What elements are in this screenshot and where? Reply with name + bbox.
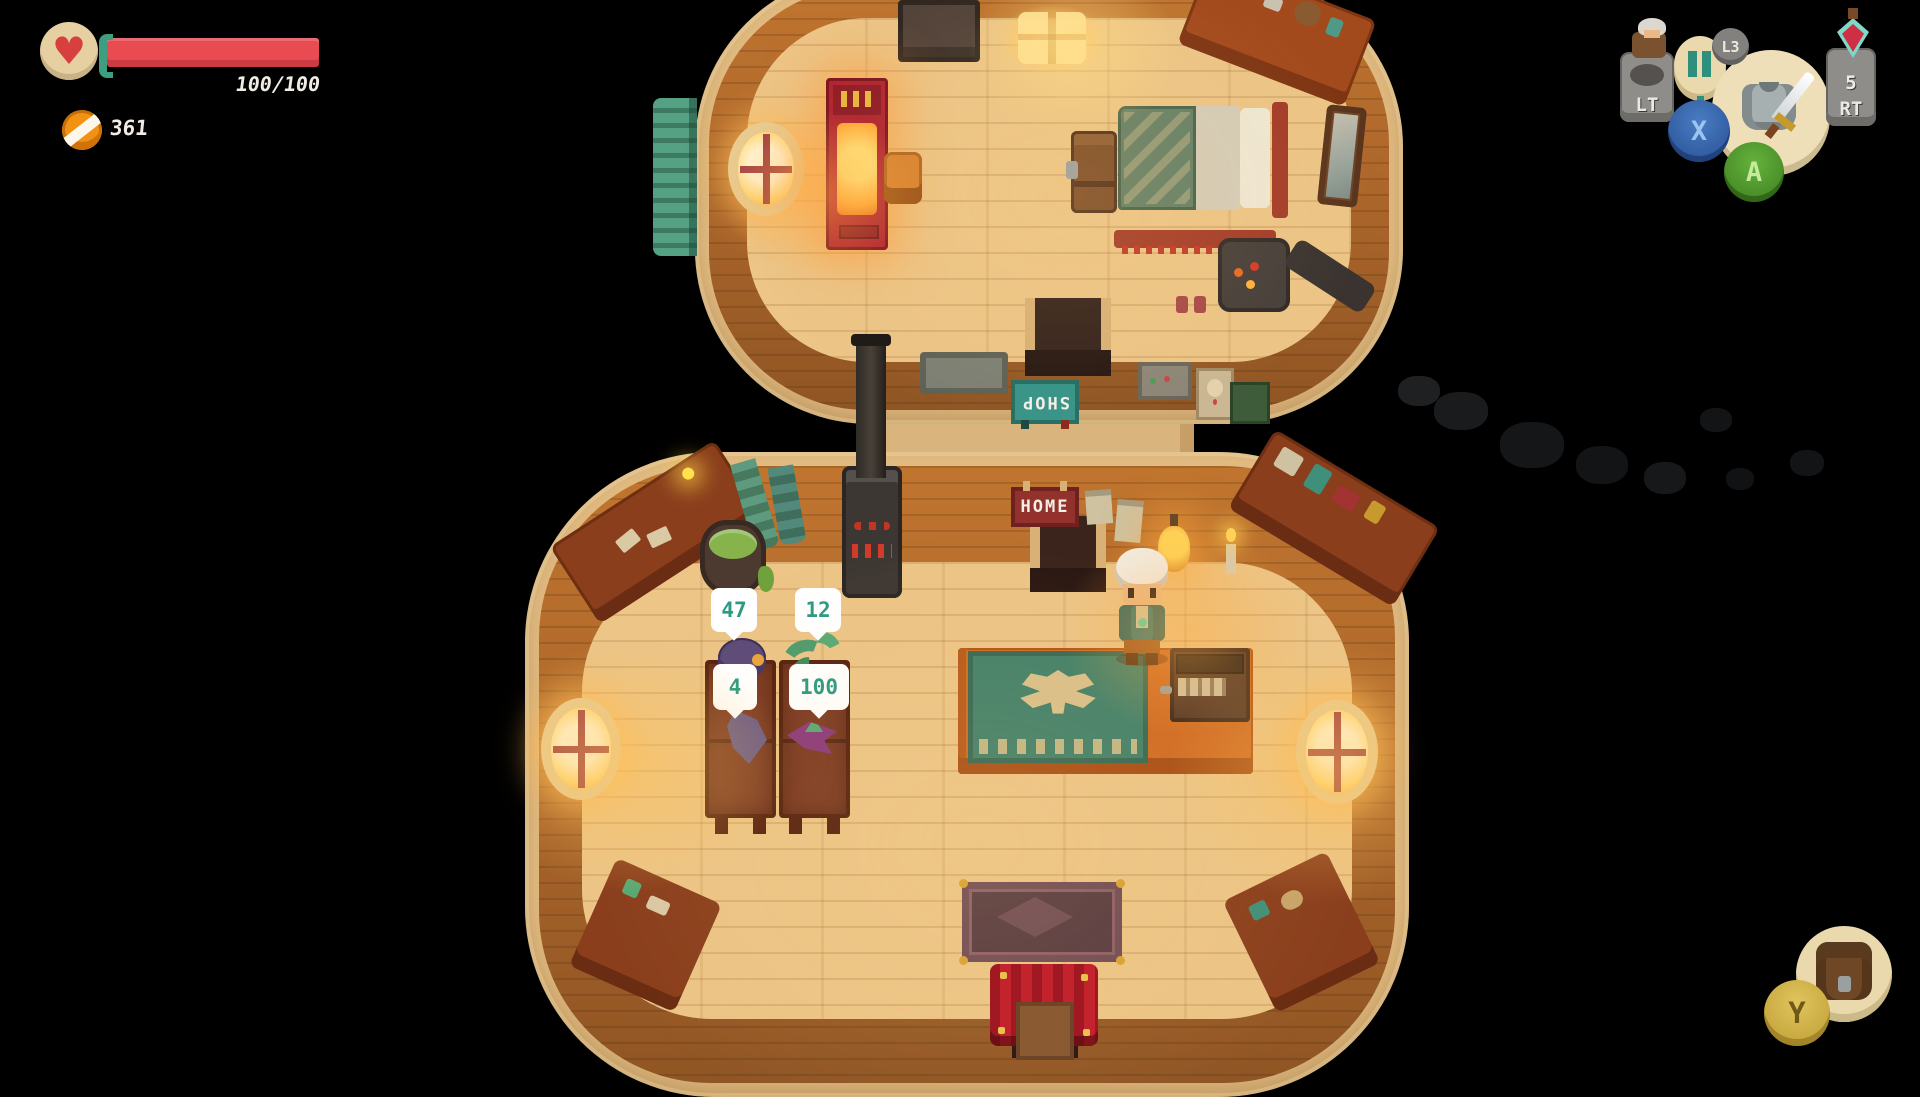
chest-band bbox=[1074, 181, 1114, 187]
price-value: 4 bbox=[729, 675, 742, 699]
wood-stove[interactable] bbox=[842, 466, 902, 598]
lt-icon-slot bbox=[1630, 64, 1664, 86]
gold-trinket bbox=[1363, 500, 1387, 525]
cabinet-paper bbox=[645, 895, 671, 917]
bed[interactable] bbox=[1118, 106, 1278, 230]
wall-portrait bbox=[1196, 368, 1234, 420]
slipper bbox=[1176, 296, 1188, 313]
picture-dot bbox=[1164, 376, 1170, 382]
slipper bbox=[1194, 296, 1206, 313]
stove-chimney-pipe bbox=[856, 338, 886, 478]
counter-carpet bbox=[968, 651, 1148, 763]
stove-embers bbox=[854, 522, 890, 530]
smoke-puff bbox=[1434, 392, 1488, 430]
player-amulet bbox=[1138, 618, 1147, 627]
player-boot bbox=[1126, 653, 1138, 665]
cash-register[interactable] bbox=[1170, 648, 1250, 722]
table-leg bbox=[753, 814, 766, 834]
cauldron-soup bbox=[709, 529, 757, 559]
table-leg bbox=[715, 814, 728, 834]
entry-mat bbox=[898, 0, 980, 62]
potion-icon bbox=[1836, 8, 1870, 60]
furnace bbox=[1218, 238, 1290, 312]
cabinet-sack bbox=[1278, 887, 1306, 913]
player-eye bbox=[1150, 588, 1156, 598]
shelf-paper bbox=[615, 528, 642, 554]
smoke-puff bbox=[1500, 422, 1564, 468]
wall-picture bbox=[1138, 362, 1192, 400]
skull-picture bbox=[1273, 446, 1305, 477]
player-boot bbox=[1146, 653, 1158, 665]
home-sign-label: HOME bbox=[1021, 497, 1070, 517]
smoke-puff bbox=[1700, 408, 1732, 432]
potion-count: 5 bbox=[1826, 72, 1876, 94]
satchel-icon bbox=[1816, 942, 1872, 1000]
bed-pillow bbox=[1240, 108, 1270, 208]
coin-count: 361 bbox=[109, 116, 149, 140]
rug-knot bbox=[1116, 956, 1125, 965]
coin-icon bbox=[62, 110, 102, 150]
rug-knot bbox=[959, 879, 968, 888]
exterior-awning bbox=[653, 98, 697, 256]
price-bubble: 47 bbox=[711, 588, 757, 632]
potion-cork bbox=[1848, 8, 1858, 19]
shelf-paper bbox=[646, 526, 672, 549]
smoke-puff bbox=[1644, 462, 1686, 494]
mirror-glass bbox=[1326, 113, 1359, 199]
l3-label: L3 bbox=[1721, 38, 1739, 56]
register-keys bbox=[1178, 678, 1226, 696]
cauldron[interactable] bbox=[700, 520, 766, 594]
carpet-emblem bbox=[1013, 670, 1103, 726]
cabinet-plant bbox=[621, 878, 642, 899]
wardrobe-glow bbox=[837, 123, 877, 215]
shop-sign-label: SHOP bbox=[1021, 392, 1070, 412]
price-bubble: 4 bbox=[713, 664, 757, 710]
pause-icon bbox=[1688, 51, 1697, 77]
a-button-prompt: A bbox=[1724, 142, 1784, 202]
note-paper bbox=[1114, 499, 1144, 543]
player-eye bbox=[1128, 588, 1134, 598]
price-value: 12 bbox=[805, 598, 830, 622]
ember bbox=[1234, 268, 1243, 277]
glowing-wardrobe[interactable] bbox=[826, 78, 888, 250]
round-window bbox=[541, 698, 621, 800]
stove-vents bbox=[852, 544, 892, 558]
chest-clasp bbox=[1066, 161, 1078, 179]
player-character[interactable] bbox=[1110, 548, 1174, 666]
x-label: X bbox=[1691, 116, 1707, 147]
wardrobe-drawer bbox=[839, 225, 879, 239]
ember bbox=[1250, 262, 1259, 271]
health-value: 100/100 bbox=[168, 72, 321, 96]
game-viewport[interactable]: SHOP HOME bbox=[0, 0, 1920, 1080]
rug-knot bbox=[1116, 879, 1125, 888]
price-bubble: 12 bbox=[795, 588, 841, 632]
player-shadow bbox=[1116, 652, 1168, 666]
health-bar-bracket bbox=[99, 34, 113, 78]
candle bbox=[1226, 544, 1236, 574]
price-value: 100 bbox=[800, 675, 838, 699]
window-light-patch bbox=[998, 4, 1106, 74]
cauldron-plant bbox=[758, 566, 774, 592]
pause-icon bbox=[1702, 51, 1711, 77]
window-frame bbox=[740, 166, 792, 173]
note-paper bbox=[1085, 489, 1113, 525]
smoke-puff bbox=[1576, 446, 1628, 484]
shop-counter[interactable] bbox=[958, 648, 1253, 774]
awning-stud bbox=[1081, 974, 1088, 981]
door-to-shop[interactable] bbox=[1025, 298, 1111, 376]
home-sign: HOME bbox=[1011, 487, 1079, 527]
cabinet-box bbox=[1248, 899, 1271, 921]
awning-stud bbox=[1000, 972, 1007, 979]
window-frame bbox=[553, 746, 609, 753]
ornate-rug bbox=[962, 882, 1122, 962]
window-frame bbox=[1308, 749, 1366, 756]
heart-icon: ♥ bbox=[52, 32, 86, 70]
entrance-mat bbox=[1016, 1002, 1074, 1060]
awning-stud bbox=[998, 1027, 1005, 1034]
shelf-sack bbox=[1291, 0, 1324, 30]
rt-label: RT bbox=[1826, 98, 1876, 120]
smoke-puff bbox=[1398, 376, 1440, 406]
shop-room: 47 12 4 100 bbox=[525, 452, 1409, 1097]
teal-book bbox=[1302, 463, 1333, 496]
bed-sheet bbox=[1196, 106, 1240, 210]
bed-frame bbox=[1272, 102, 1288, 218]
health-bar bbox=[107, 38, 319, 67]
wardrobe-glyphs bbox=[841, 91, 873, 107]
player-pants bbox=[1124, 640, 1160, 654]
window-pane-light bbox=[1018, 12, 1086, 64]
red-box bbox=[1331, 484, 1361, 512]
ember bbox=[1246, 280, 1255, 289]
lt-button-prompt: LT bbox=[1620, 52, 1674, 122]
smoke-puff bbox=[1726, 468, 1754, 490]
register-screen bbox=[1176, 654, 1244, 674]
shelf-book bbox=[1325, 16, 1345, 38]
register-crank bbox=[1160, 686, 1172, 694]
table-leg bbox=[827, 814, 840, 834]
shelf-lantern bbox=[680, 465, 697, 482]
side-table bbox=[920, 352, 1008, 394]
bed-blanket bbox=[1118, 106, 1196, 210]
round-window bbox=[728, 122, 804, 216]
wall-poster bbox=[1230, 382, 1270, 424]
y-label: Y bbox=[1788, 996, 1805, 1030]
storage-chest[interactable] bbox=[1071, 131, 1117, 213]
rug-knot bbox=[959, 956, 968, 965]
l3-button-prompt: L3 bbox=[1712, 28, 1749, 65]
home-room bbox=[695, 0, 1403, 424]
x-button-prompt: X bbox=[1668, 100, 1730, 162]
table-leg bbox=[789, 814, 802, 834]
shelf-frame bbox=[1262, 0, 1283, 12]
health-badge: ♥ bbox=[40, 22, 98, 80]
shop-sign: SHOP bbox=[1011, 380, 1079, 424]
smoke-puff bbox=[1790, 450, 1824, 476]
lt-label: LT bbox=[1620, 94, 1674, 116]
price-bubble: 100 bbox=[789, 664, 849, 710]
sprite-face bbox=[1644, 30, 1660, 38]
carpet-border bbox=[979, 739, 1137, 754]
round-window bbox=[1296, 700, 1378, 804]
awning-stud bbox=[1083, 1029, 1090, 1036]
picture-dot bbox=[1150, 378, 1156, 384]
y-button-prompt: Y bbox=[1764, 980, 1830, 1046]
price-value: 47 bbox=[721, 598, 746, 622]
a-label: A bbox=[1746, 157, 1762, 188]
companion-sprite-icon bbox=[1624, 18, 1676, 58]
stool bbox=[884, 152, 922, 204]
